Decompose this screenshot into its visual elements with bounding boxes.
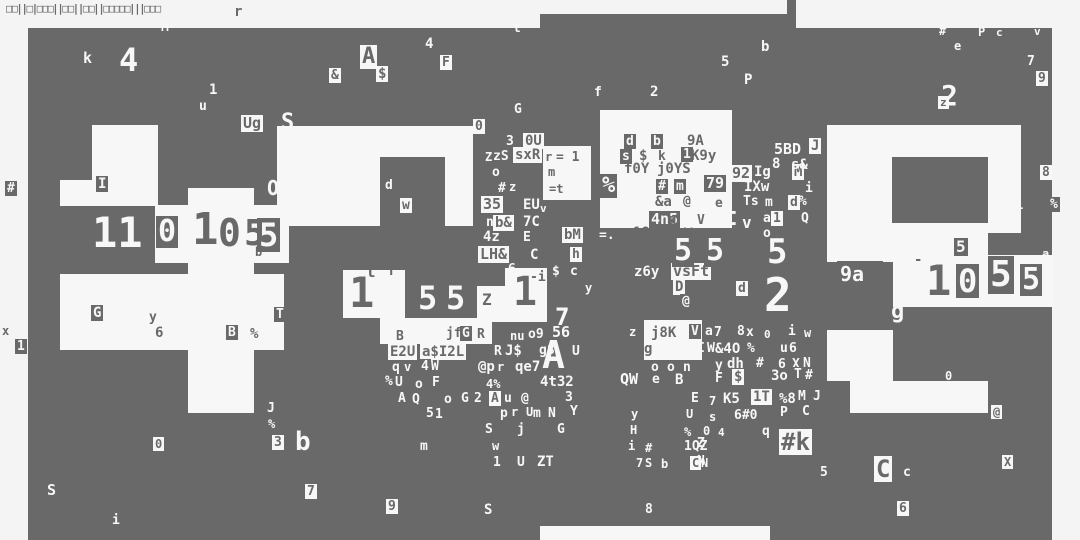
noise-glyph: 1T [751,389,772,405]
noise-glyph: A [489,391,501,406]
noise-glyph: Q [412,393,420,406]
noise-glyph: m [765,196,773,209]
noise-glyph: o [490,165,502,180]
noise-glyph: y [585,282,592,294]
noise-glyph: b [761,40,769,54]
noise-block [892,157,988,223]
noise-glyph: P [744,73,752,87]
noise-glyph: C [802,405,810,418]
noise-glyph: D [673,279,685,295]
noise-glyph: C [874,456,892,482]
noise-glyph: m [533,407,541,420]
noise-glyph: z [938,96,949,109]
noise-glyph: 4 [419,359,431,374]
noise-glyph: 5 [988,256,1014,294]
noise-glyph: b [255,246,262,258]
noise-glyph: % [745,341,757,356]
noise-glyph: 0 [153,437,164,451]
noise-glyph: R [494,345,502,358]
noise-glyph: 8 [1040,165,1052,180]
noise-glyph: % [383,374,395,389]
noise-block [850,381,988,413]
noise-glyph: M [796,389,808,404]
noise-glyph: c [996,27,1003,38]
noise-glyph: A [396,391,408,406]
noise-glyph: N [548,407,556,420]
noise-glyph: 1 [771,211,783,226]
noise-glyph: J [265,401,277,416]
noise-glyph: e [652,373,660,386]
noise-glyph: m [420,440,428,453]
noise-glyph: s [709,411,716,423]
noise-glyph: S [484,503,492,517]
noise-glyph: 1 [1016,199,1023,211]
noise-glyph: % [799,195,807,208]
noise-glyph: 5 [1020,264,1042,296]
noise-glyph: G [557,423,565,436]
noise-glyph: g [644,342,652,356]
noise-glyph: 0 [218,214,241,252]
noise-glyph: K9y [691,149,716,163]
noise-glyph: 1 [926,260,951,302]
noise-glyph: 4t32 [540,375,574,389]
noise-glyph: @ [683,195,691,208]
noise-glyph: g [891,301,904,323]
noise-glyph: C [690,456,701,470]
noise-glyph: j0YS [657,162,691,176]
noise-glyph: @p [476,359,497,375]
noise-glyph: # [498,182,506,195]
noise-glyph: & [329,68,341,83]
noise-glyph: t [366,264,376,280]
noise-glyph: r [545,151,552,163]
noise-glyph: S [645,457,652,469]
noise-glyph: sxR [513,147,542,163]
noise-glyph: y [629,407,640,421]
noise-glyph: O [267,178,279,198]
noise-glyph: b [661,458,668,470]
noise-glyph: # [5,181,17,196]
noise-glyph: qe7 [513,359,542,375]
noise-glyph: X [1002,455,1013,469]
noise-glyph: 3 [272,435,284,450]
noise-glyph: T [387,264,395,278]
noise-glyph: 7 [714,326,722,339]
noise-glyph: v [540,203,547,214]
noise-glyph: r [509,405,520,419]
noise-glyph: b [651,134,663,149]
noise-glyph: IXw [744,180,769,194]
noise-glyph: Ug [241,115,263,132]
noise-glyph: 4 [425,37,433,51]
noise-glyph: i [788,325,796,338]
noise-glyph: bM [562,227,583,243]
noise-glyph: $ [376,66,388,82]
noise-glyph: $ [552,265,560,278]
noise-glyph: U [515,455,527,470]
noise-glyph: Ts [743,195,759,208]
noise-glyph: T [792,367,804,382]
noise-glyph: 4% [486,378,500,390]
noise-glyph: #k [779,429,812,455]
noise-glyph: o [415,378,423,391]
noise-glyph: A [542,336,565,374]
noise-glyph: c [570,265,578,278]
noise-glyph: -i [530,271,546,284]
noise-glyph: 18 [633,226,650,240]
noise-glyph: Ig [754,165,771,179]
noise-glyph: M [161,21,169,34]
noise-glyph: N [701,457,708,469]
noise-glyph: 4 [119,44,138,76]
noise-glyph: B [675,373,683,387]
noise-glyph: ZT [537,455,554,469]
noise-glyph: 9 [386,499,398,514]
noise-glyph: 3o [771,369,788,383]
noise-glyph: 4z [483,230,500,244]
noise-glyph: # [645,442,652,454]
noise-glyph: G [91,305,103,321]
noise-glyph: w [492,440,499,452]
noise-glyph: 5 [954,238,968,256]
noise-glyph: n [683,361,691,374]
noise-glyph: =. [599,229,615,242]
noise-glyph: z [627,325,638,339]
noise-glyph: p [500,407,508,420]
noise-glyph: z [507,180,518,194]
noise-glyph: P [778,405,790,420]
binary-sequence: □□||□|□□□||□□||□□||□□□□□|||□□□ [6,3,160,14]
noise-glyph: nu [510,330,524,342]
noise-glyph: zS [493,150,509,163]
noise-glyph: 11 [92,212,143,254]
noise-glyph: 35 [481,196,503,213]
noise-glyph: w [802,326,813,340]
noise-glyph: 6 [897,501,909,516]
noise-glyph: c [903,466,911,479]
noise-glyph: 0 [956,264,979,298]
noise-glyph: U [572,345,580,358]
noise-glyph: - [914,253,922,267]
noise-glyph: F [432,376,440,389]
noise-glyph: # [756,357,764,370]
noise-glyph: 1 [15,339,27,354]
noise-glyph: A [360,45,377,69]
noise-block [787,0,796,28]
noise-glyph: S [859,336,875,362]
noise-glyph: j [517,423,525,436]
noise-glyph: 7C [523,215,540,229]
noise-glyph: r [497,361,504,373]
noise-glyph: r [234,5,242,19]
noise-glyph: K5 [723,392,740,406]
noise-glyph: B [226,325,238,340]
noise-glyph: &4O [715,342,740,356]
noise-glyph: S [47,483,56,498]
noise-glyph: 1 [491,455,503,470]
noise-glyph: 0 [473,119,485,134]
noise-glyph: E [523,231,531,244]
noise-glyph: 5 [672,235,694,267]
noise-block [540,14,787,28]
noise-glyph: # [656,179,668,194]
noise-glyph: S [281,112,294,134]
noise-glyph: 5BD [774,142,801,157]
noise-glyph: J$ [503,343,524,359]
noise-glyph: 9a [840,264,864,284]
noise-glyph: o [444,393,452,406]
noise-glyph: 2 [474,392,482,405]
noise-glyph: 9 [1036,71,1048,86]
noise-glyph: J [811,389,823,404]
noise-glyph: =t [549,183,563,195]
noise-glyph: q [668,213,676,227]
noise-glyph: n [600,118,608,131]
noise-glyph: o [667,361,675,374]
noise-glyph: E [691,392,699,405]
noise-glyph: a$I2L [420,344,466,360]
noise-block [988,125,1021,233]
noise-glyph: f [594,86,602,99]
noise-glyph: z6y [634,265,659,279]
noise-glyph: - - [599,214,624,228]
noise-glyph: I [96,176,108,192]
noise-glyph: % [684,426,691,438]
noise-glyph: q [762,425,770,438]
noise-glyph: W [431,360,439,373]
noise-block [380,157,445,254]
noise-glyph: 6#0 [734,409,757,422]
noise-glyph: E2U [388,344,417,360]
noise-glyph: 0 [762,328,773,341]
noise-glyph: 9A [687,134,704,148]
noise-glyph: %8 [779,392,796,406]
noise-glyph: x [746,326,754,339]
noise-glyph: V [689,324,701,339]
noise-glyph: # [939,25,946,37]
noise-glyph: U [684,407,695,421]
noise-glyph: y [149,311,157,324]
noise-glyph: 79 [704,175,726,192]
noise-glyph: 6 [789,342,797,355]
noise-glyph: Z [697,437,705,450]
noise-glyph: B [396,330,404,343]
noise-glyph: 8 [643,502,655,517]
noise-glyph: e [954,40,961,52]
noise-glyph: Y [570,405,578,418]
noise-glyph: 1 [209,83,217,97]
noise-glyph: t [722,204,738,230]
noise-glyph: $ [732,369,744,385]
noise-glyph: Q [801,212,809,225]
noise-glyph: j8K [651,326,676,340]
noise-glyph: i [628,440,635,452]
noise-glyph: 0 [156,216,178,248]
noise-glyph: F [715,372,723,385]
noise-glyph: m [548,166,555,178]
noise-canvas: □□||□|□□□||□□||□□||□□□□□|||□□□rMt#Pcve79… [0,0,1080,540]
noise-glyph: w [400,198,412,213]
noise-glyph: P [978,26,985,38]
noise-glyph: R [477,328,485,341]
noise-glyph: 5 [418,282,437,314]
noise-glyph: W [440,131,448,144]
noise-glyph: G [460,326,472,341]
noise-glyph: LH& [478,246,509,263]
noise-glyph: QW [620,372,638,387]
noise-glyph: I [697,342,705,355]
noise-glyph: q [390,360,402,375]
noise-glyph: a [1042,248,1049,260]
noise-glyph: Z [482,292,492,308]
noise-glyph: % [600,174,617,198]
noise-glyph: % [266,417,277,431]
noise-glyph: m [674,179,686,194]
noise-glyph: 1 [433,407,445,422]
noise-glyph: 5 [721,55,729,69]
noise-glyph: d [736,281,748,296]
noise-glyph: J [809,138,821,154]
noise-glyph: 0 [945,370,952,382]
noise-glyph: % [250,327,258,341]
noise-glyph: 8 [772,157,780,171]
noise-glyph: i [112,514,120,527]
noise-glyph: 7 [1027,55,1035,68]
noise-glyph: b [295,429,311,455]
noise-glyph: f0Y [624,162,649,176]
noise-glyph: 2 [764,272,792,318]
noise-block [540,526,770,540]
noise-glyph: v [740,214,754,232]
noise-glyph: H [628,423,639,437]
noise-glyph: 1 [192,208,219,252]
noise-glyph: &a [655,195,672,209]
noise-glyph: 7 [305,484,317,499]
noise-glyph: G [514,103,522,116]
noise-glyph: 4 [716,426,727,439]
noise-glyph: 2 [650,85,658,99]
noise-glyph: s& [791,158,808,172]
noise-glyph: d [385,179,393,192]
noise-glyph: v [1034,26,1041,37]
noise-glyph: v [404,361,411,373]
noise-glyph: o [763,227,771,240]
noise-glyph: 5 [704,235,726,267]
noise-glyph: S [483,422,495,437]
noise-glyph: u [199,100,207,113]
noise-glyph: h [570,247,582,262]
noise-glyph: % [1048,197,1060,212]
noise-glyph: G [459,391,471,406]
noise-glyph: d [624,134,636,149]
noise-glyph: # [805,369,813,382]
noise-glyph: @ [519,391,531,406]
noise-glyph: 3 [565,391,573,404]
noise-glyph: 7 [634,456,645,470]
noise-glyph: C [530,248,538,262]
noise-glyph: T [274,307,286,322]
noise-glyph: k [83,51,92,66]
noise-glyph: a [763,212,771,225]
noise-glyph: x [2,325,9,337]
noise-glyph: EU [523,198,540,212]
noise-glyph: @ [680,294,692,309]
noise-glyph: k2 [675,342,692,356]
noise-glyph: t [513,22,521,35]
noise-glyph: = 1 [556,151,579,164]
noise-glyph: U [395,376,403,389]
noise-glyph: F [440,55,452,70]
noise-glyph: 7 [709,395,716,407]
noise-glyph: 5 [818,465,830,480]
noise-glyph: @ [991,405,1002,419]
noise-glyph: 5 [446,282,465,314]
noise-glyph: 6 [155,326,163,340]
noise-glyph: u [504,392,512,405]
